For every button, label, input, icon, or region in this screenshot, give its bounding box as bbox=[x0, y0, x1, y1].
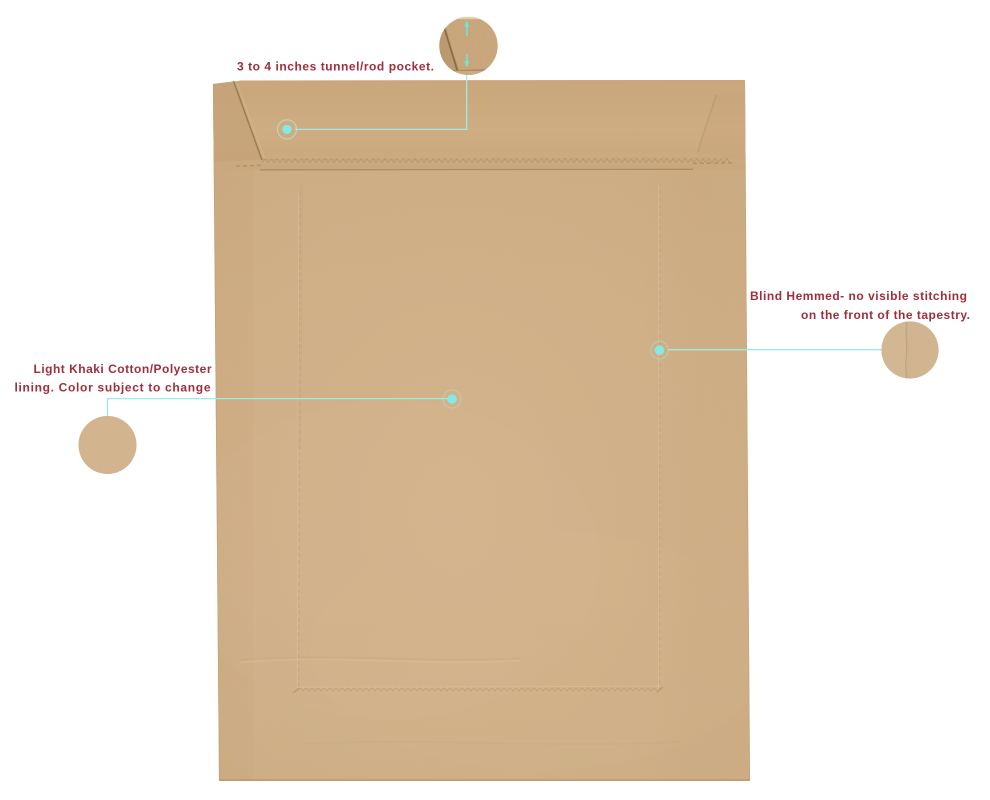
svg-text:on the front of the tapestry.: on the front of the tapestry. bbox=[801, 308, 970, 322]
svg-text:lining. Color subject to chang: lining. Color subject to change bbox=[15, 381, 211, 395]
svg-text:3 to 4 inches tunnel/rod pocke: 3 to 4 inches tunnel/rod pocket. bbox=[237, 60, 434, 74]
svg-text:Blind Hemmed- no visible stitc: Blind Hemmed- no visible stitching bbox=[750, 289, 967, 303]
svg-text:Light Khaki Cotton/Polyester: Light Khaki Cotton/Polyester bbox=[34, 362, 212, 376]
